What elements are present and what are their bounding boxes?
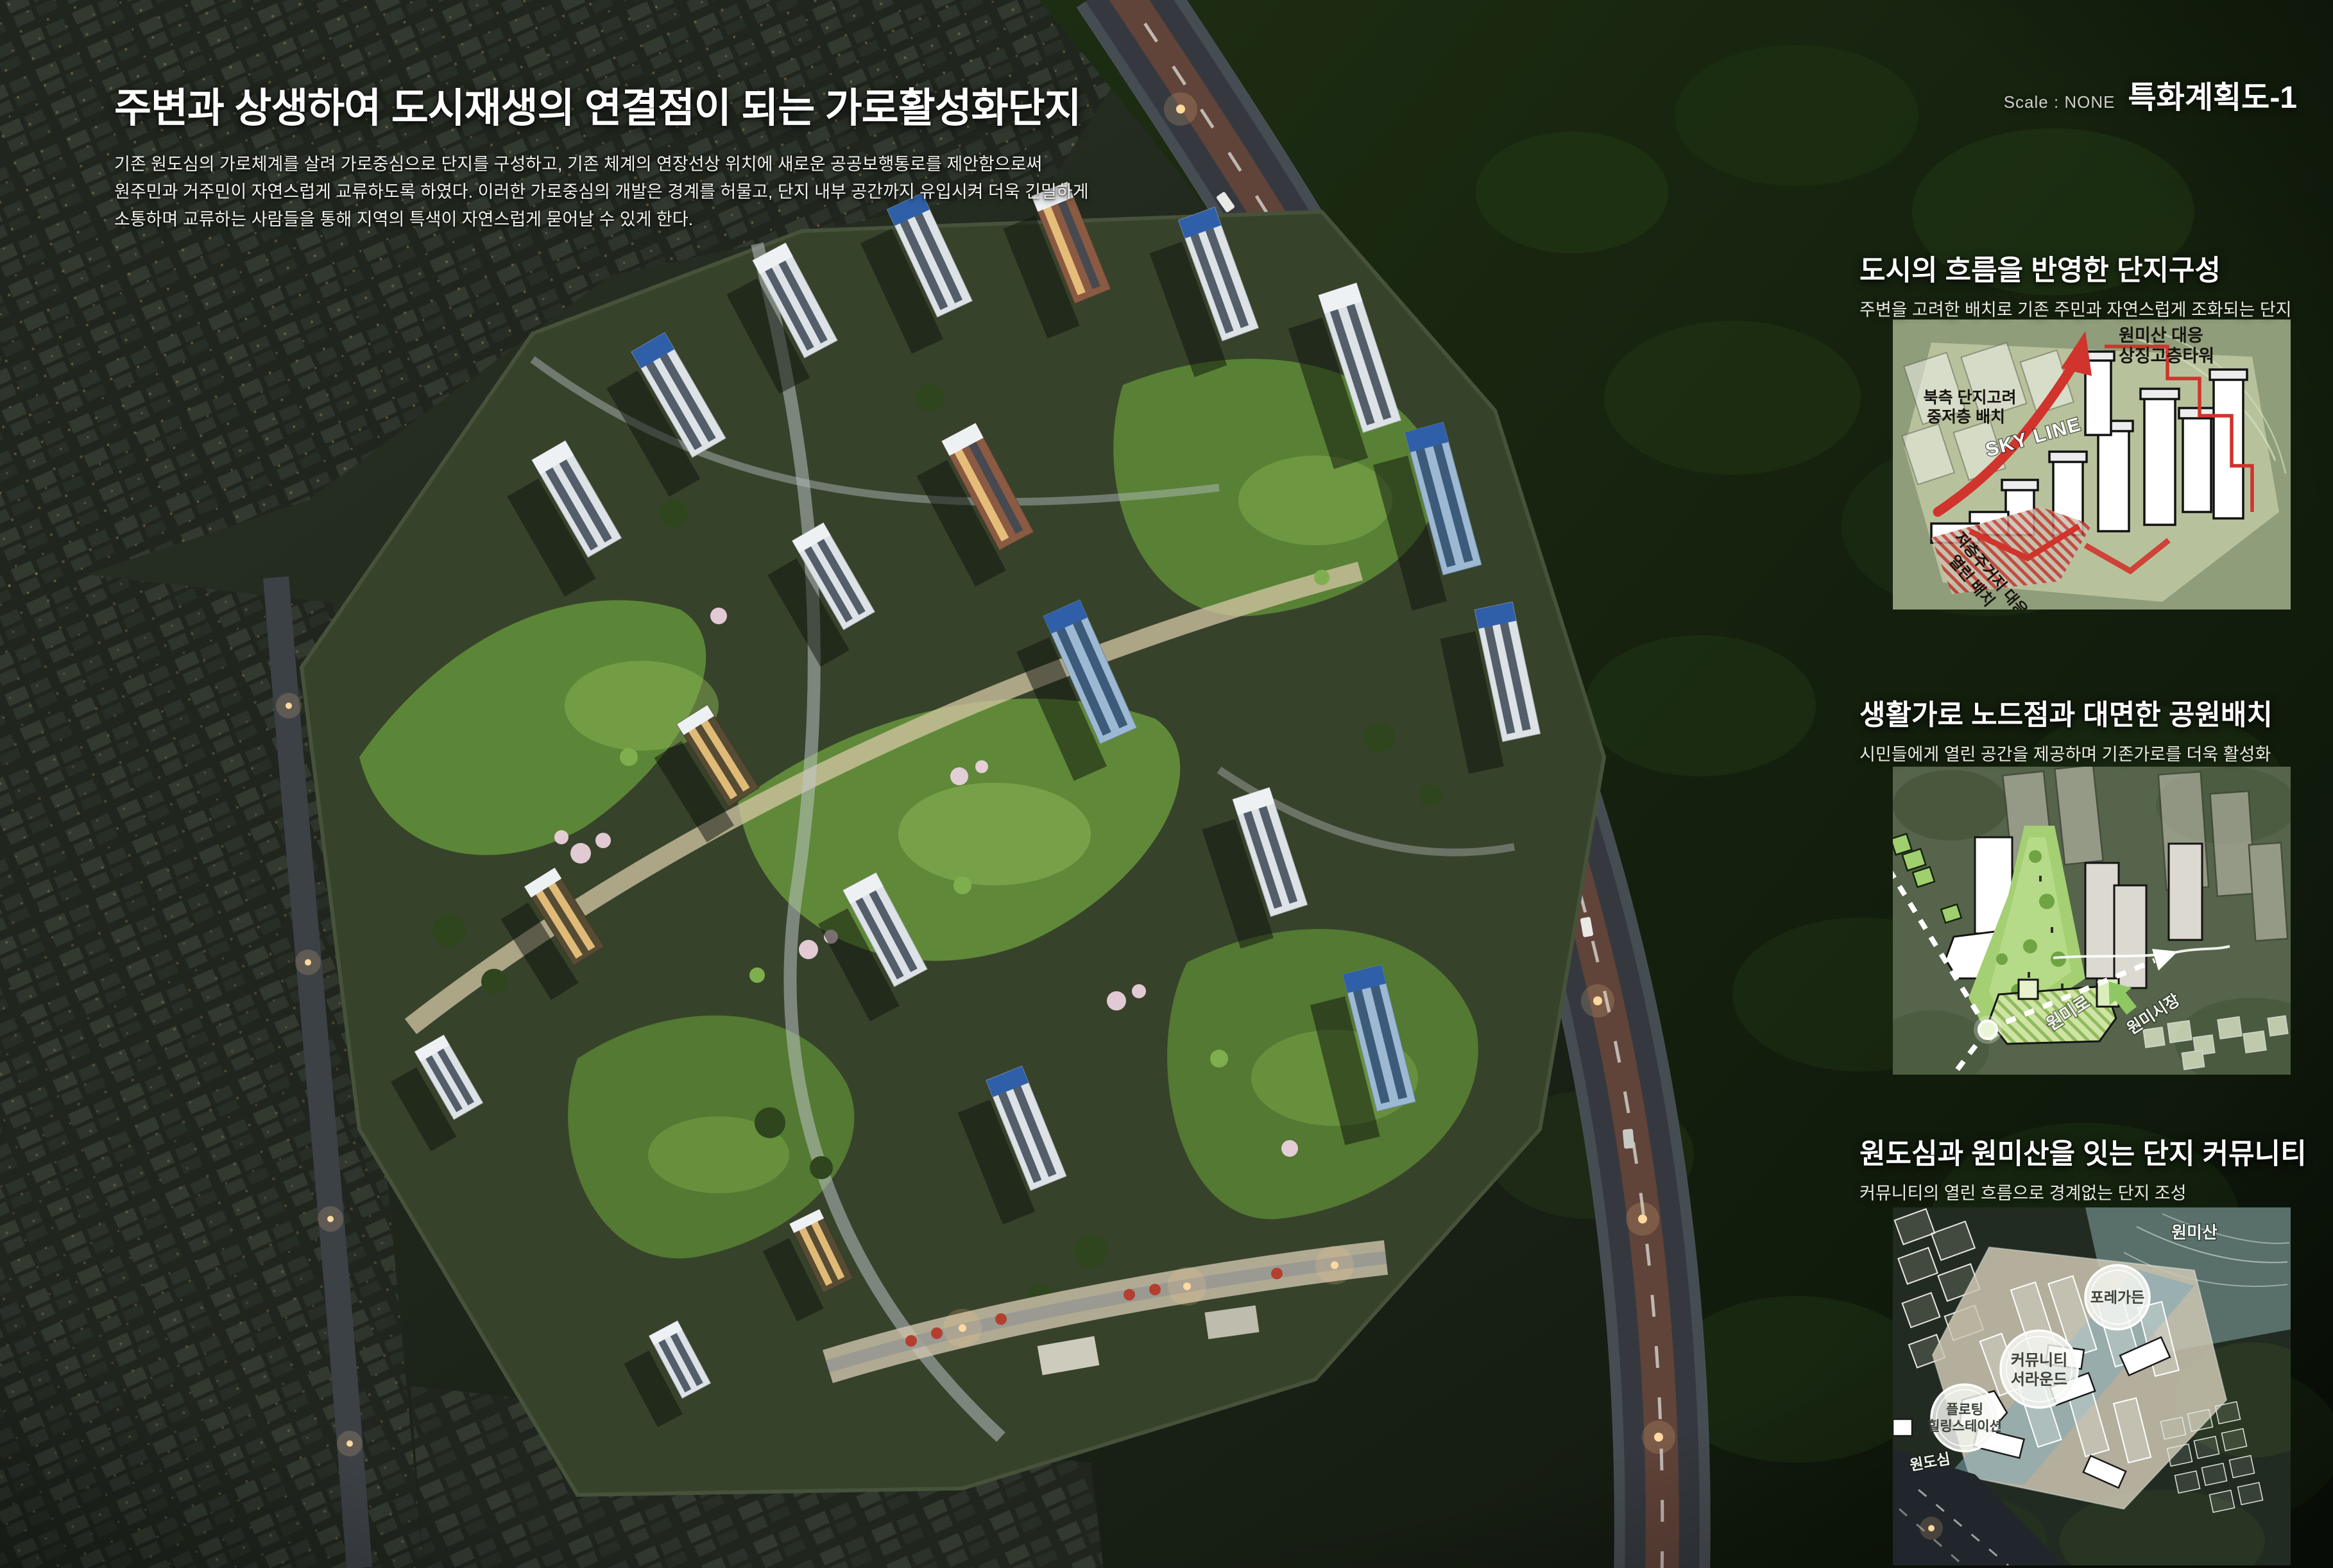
callout-fore-garden: 포레가든 (2085, 1265, 2149, 1329)
label-wonmisan: 원미산 (2171, 1223, 2218, 1242)
label-community: 서라운드 (2011, 1371, 2067, 1388)
drawing-identifier: Scale : NONE 특화계획도-1 (2004, 72, 2297, 117)
diagram-community: 포레가든 커뮤니티 서라운드 플로팅 힐링스테이션 원미산 원도심 (1893, 1207, 2291, 1565)
presentation-board: 주변과 상생하여 도시재생의 연결점이 되는 가로활성화단지 기존 원도심의 가… (0, 0, 2333, 1568)
section-subtitle: 시민들에게 열린 공간을 제공하며 기존가로를 더욱 활성화 (1859, 740, 2309, 765)
section-subtitle: 주변을 고려한 배치로 기존 주민과 자연스럽게 조화되는 단지 (1859, 296, 2309, 321)
label-community: 커뮤니티 (2011, 1352, 2067, 1369)
section-community: 원도심과 원미산을 잇는 단지 커뮤니티 커뮤니티의 열린 흐름으로 경계없는 … (1859, 1130, 2309, 1204)
label-north-lowrise: 중저층 배치 (1927, 408, 2005, 426)
section-park-node: 생활가로 노드점과 대면한 공원배치 시민들에게 열린 공간을 제공하며 기존가… (1859, 692, 2309, 765)
diagram-park-node: 원미로 원미시장 (1893, 767, 2291, 1075)
scale-label: Scale : NONE (2004, 92, 2115, 112)
diagram-urban-flow: 원미산 대응 상징고층타워 북측 단지고려 중저층 배치 SKY LINE 저층… (1893, 320, 2291, 609)
section-subtitle: 커뮤니티의 열린 흐름으로 경계없는 단지 조성 (1859, 1179, 2309, 1204)
page-title: 주변과 상생하여 도시재생의 연결점이 되는 가로활성화단지 (114, 76, 1089, 134)
node-circle (1979, 1021, 1997, 1039)
label-symbol-tower: 원미산 대응 (2119, 326, 2203, 345)
intro-line: 소통하며 교류하는 사람들을 통해 지역의 특색이 자연스럽게 묻어날 수 있게… (114, 206, 1089, 234)
label-symbol-tower: 상징고층타워 (2119, 346, 2214, 366)
section-title: 생활가로 노드점과 대면한 공원배치 (1859, 692, 2309, 733)
section-title: 도시의 흐름을 반영한 단지구성 (1859, 247, 2309, 288)
header: 주변과 상생하여 도시재생의 연결점이 되는 가로활성화단지 기존 원도심의 가… (114, 76, 1089, 234)
label-fore-garden: 포레가든 (2090, 1289, 2145, 1306)
label-floating: 플로팅 (1946, 1402, 1983, 1417)
label-north-lowrise: 북측 단지고려 (1924, 389, 2017, 407)
intro-paragraph: 기존 원도심의 가로체계를 살려 가로중심으로 단지를 구성하고, 기존 체계의… (114, 151, 1089, 234)
intro-line: 기존 원도심의 가로체계를 살려 가로중심으로 단지를 구성하고, 기존 체계의… (114, 151, 1089, 178)
callout-community-surround: 커뮤니티 서라운드 (2001, 1331, 2078, 1408)
label-floating: 힐링스테이션 (1927, 1419, 2002, 1434)
section-urban-flow: 도시의 흐름을 반영한 단지구성 주변을 고려한 배치로 기존 주민과 자연스럽… (1859, 247, 2309, 321)
section-title: 원도심과 원미산을 잇는 단지 커뮤니티 (1859, 1130, 2309, 1172)
intro-line: 원주민과 거주민이 자연스럽게 교류하도록 하였다. 이러한 가로중심의 개발은… (114, 178, 1089, 206)
drawing-code: 특화계획도-1 (2128, 72, 2297, 117)
